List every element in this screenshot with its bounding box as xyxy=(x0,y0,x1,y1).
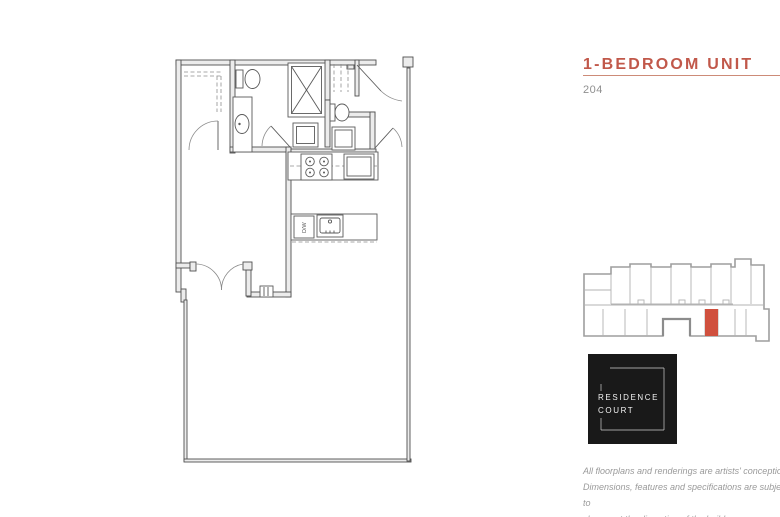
disclaimer-line: Dimensions, features and specifications … xyxy=(583,479,780,511)
disclaimer-text: All floorplans and renderings are artist… xyxy=(583,463,780,517)
entry-area xyxy=(334,64,402,101)
brochure-page: D/W 1-BEDROOM UNIT 204 xyxy=(0,0,780,517)
floorplan-drawing: D/W xyxy=(170,50,420,470)
walkin-closet xyxy=(184,72,221,150)
walls-group xyxy=(176,57,413,462)
kitchen: D/W xyxy=(288,152,378,242)
keyplan-drawing xyxy=(583,257,770,351)
building-outline xyxy=(584,259,769,341)
unit-number: 204 xyxy=(583,84,603,96)
disclaimer-line: change at the discretion of the builder. xyxy=(583,511,780,517)
building-entry xyxy=(663,319,690,336)
french-doors xyxy=(196,264,273,297)
disclaimer-line: All floorplans and renderings are artist… xyxy=(583,463,780,479)
title-underline xyxy=(583,75,780,76)
page-title: 1-BEDROOM UNIT xyxy=(583,56,753,74)
brand-logo: RESIDENCE COURT xyxy=(588,354,677,444)
dishwasher-label: D/W xyxy=(302,222,308,234)
logo-text-line1: RESIDENCE xyxy=(598,393,659,402)
keyplan-highlighted-unit xyxy=(705,309,718,336)
logo-text-line2: COURT xyxy=(598,406,634,415)
